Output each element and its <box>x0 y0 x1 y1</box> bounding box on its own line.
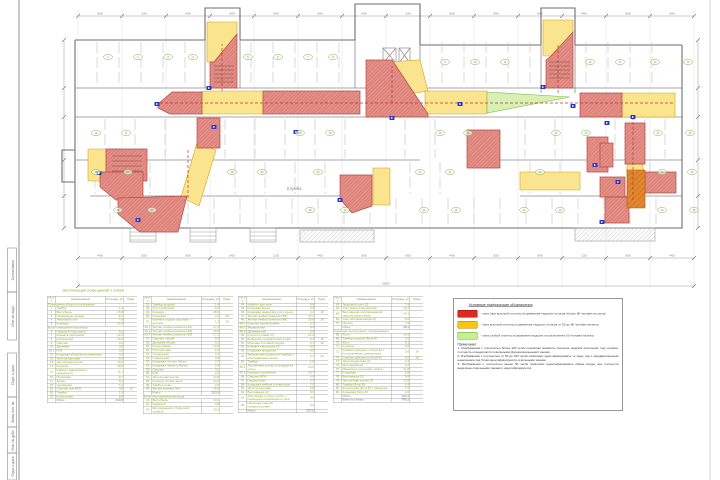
table-row: 55.1Лестничная клетка со входом на улицу… <box>238 364 328 371</box>
evacuation-direction-marker <box>631 115 636 119</box>
room-number-tag: 40 <box>420 207 429 212</box>
table-row: 26Комната отдыха (игровая) — детская1,21… <box>143 318 233 325</box>
room-number-tag: 28 <box>228 169 237 174</box>
room-number-tag: 15 <box>684 59 693 64</box>
frame-stamp-label: Взам. инв. № <box>11 401 15 422</box>
schedule-header: Прим. <box>124 296 137 303</box>
schedule-header: Площадь, м² <box>391 296 410 303</box>
evacuation-direction-marker <box>155 102 160 106</box>
room-number-tag: 42 <box>520 207 529 212</box>
svg-text:5400: 5400 <box>229 254 235 258</box>
room-number-tag: 18 <box>296 130 305 135</box>
evacuation-direction-marker <box>616 180 621 184</box>
svg-text:5400: 5400 <box>273 12 279 16</box>
svg-text:1200: 1200 <box>273 254 279 258</box>
room-schedule-table-4: № п/пНаименованиеПлощадь, м²Прим.63Лифто… <box>333 296 423 480</box>
room-number-tag: 34 <box>658 169 667 174</box>
legend-notes: 1. Изображения с плотностью более 100 че… <box>458 347 619 371</box>
room-number-tag: 7 <box>304 54 313 59</box>
schedule-header: Площадь, м² <box>296 296 315 303</box>
table-row: Итого207,6 <box>238 409 328 413</box>
svg-text:3000: 3000 <box>493 254 499 258</box>
flowerbed-label: Клумба <box>287 186 302 191</box>
room-number-tag: 1 <box>104 54 113 59</box>
room-number-tag: 20 <box>436 130 445 135</box>
schedule-header: № п/п <box>143 296 152 303</box>
svg-text:3000: 3000 <box>229 12 235 16</box>
schedule-header: Прим. <box>410 296 423 303</box>
svg-text:4400: 4400 <box>317 254 323 258</box>
svg-text:5400: 5400 <box>537 254 543 258</box>
room-number-tag: 21 <box>464 130 473 135</box>
room-number-tag: 6 <box>274 54 283 59</box>
svg-text:4400: 4400 <box>97 254 103 258</box>
svg-text:3000: 3000 <box>361 254 367 258</box>
legend-color-swatch <box>458 310 478 318</box>
room-number-tag: 10 <box>471 59 480 64</box>
entrance-porches <box>130 228 655 242</box>
evacuation-direction-marker <box>136 218 141 222</box>
room-number-tag: 14 <box>651 59 660 64</box>
room-number-tag: 26 <box>92 169 101 174</box>
room-number-tag: 33 <box>536 169 545 174</box>
room-number-tag: 35 <box>688 169 697 174</box>
room-number-tag: 16 <box>92 130 101 135</box>
schedule-header: Наименование <box>152 296 202 303</box>
svg-text:3000: 3000 <box>537 12 543 16</box>
drawing-sheet: СогласованоИнв. № подл.Подп. и датаВзам.… <box>0 0 720 480</box>
table-row: Всего по этажу785,2 <box>333 398 423 402</box>
room-number-tag: 37 <box>148 207 157 212</box>
evacuation-direction-marker <box>571 104 576 108</box>
svg-text:3600: 3600 <box>97 12 103 16</box>
room-number-tag: 19 <box>326 130 335 135</box>
schedule-header: № п/п <box>47 296 56 303</box>
schedule-header: Наименование <box>56 296 106 303</box>
room-number-tag: 3 <box>164 54 173 59</box>
room-number-tag: 4 <box>189 54 198 59</box>
table-row: 62Насосная станция пожаротушения9,2 <box>238 402 328 409</box>
evacuation-direction-marker <box>338 198 343 202</box>
evacuation-direction-marker <box>390 116 395 120</box>
svg-text:1200: 1200 <box>581 254 587 258</box>
legend-title: Условные графические обозначения <box>469 303 619 308</box>
frame-stamp-label: Согласовано <box>11 260 15 281</box>
legend-color-swatch <box>458 332 478 340</box>
room-schedule-table-3: № п/пНаименованиеПлощадь, м²Прим.44Кабин… <box>238 296 328 480</box>
svg-text:4400: 4400 <box>669 254 675 258</box>
svg-text:3600: 3600 <box>625 254 631 258</box>
room-schedule-table-1: № п/пНаименованиеПлощадь, м²Прим.Помещен… <box>47 296 137 480</box>
svg-text:1200: 1200 <box>405 12 411 16</box>
legend-item: - зона (при высокой плотности) движения … <box>458 310 619 318</box>
evacuation-direction-marker <box>541 85 546 89</box>
room-number-tag: 11 <box>501 59 510 64</box>
svg-text:3600: 3600 <box>405 254 411 258</box>
room-number-tag: 2 <box>134 54 143 59</box>
svg-text:4400: 4400 <box>449 254 455 258</box>
legend-notes-title: Примечания: <box>458 343 619 347</box>
legend-box: Условные графические обозначения - зона … <box>453 298 623 411</box>
svg-text:4400: 4400 <box>361 12 367 16</box>
room-number-tag: 45 <box>690 207 699 212</box>
room-number-tag: 12 <box>586 59 595 64</box>
svg-text:3600: 3600 <box>625 12 631 16</box>
svg-text:3000: 3000 <box>317 12 323 16</box>
room-number-tag: 9 <box>441 59 450 64</box>
room-number-tag: 36 <box>114 207 123 212</box>
svg-text:5400: 5400 <box>493 12 499 16</box>
frame-stamp-label: Инв. № дубл. <box>11 429 15 450</box>
svg-text:3000: 3000 <box>141 254 147 258</box>
table-row: 61Узел ввода и учёта тепла — помещение в… <box>238 395 328 402</box>
frame-stamp-label: Подп. и дата <box>11 456 15 476</box>
evacuation-direction-marker <box>600 220 605 224</box>
legend-note: 2. Изображения с плотностью от 50 до 100… <box>458 355 619 363</box>
room-number-tag: 5 <box>244 54 253 59</box>
svg-text:3600: 3600 <box>185 254 191 258</box>
legend-item-text: - зона высокой плотности движения людски… <box>481 323 599 327</box>
schedule-header: Прим. <box>220 296 233 303</box>
legend-note: 3. Изображения с плотностью менее 50 чел… <box>458 363 619 371</box>
green-zones-group <box>487 92 570 113</box>
legend-note: 1. Изображения с плотностью более 100 че… <box>458 347 619 355</box>
legend-item-text: - зона (при высокой плотности) движения … <box>481 312 606 316</box>
schedule-header: № п/п <box>238 296 247 303</box>
svg-text:4400: 4400 <box>185 12 191 16</box>
room-number-tag: 31 <box>416 169 425 174</box>
room-number-tag: 22 <box>552 130 561 135</box>
table-row: 15Кабинет заведующего (дежурного)11,3 <box>47 369 137 376</box>
frame-stamp-label: Подп. и дата <box>11 365 15 385</box>
legend-item: - зона высокой плотности движения людски… <box>458 321 619 329</box>
room-number-tag: 39 <box>341 207 350 212</box>
frame-stamp-column: СогласованоИнв. № подл.Подп. и датаВзам.… <box>8 248 17 480</box>
legend-items: - зона (при высокой плотности) движения … <box>458 310 619 340</box>
schedule-header: № п/п <box>333 296 342 303</box>
evacuation-direction-marker <box>593 163 598 167</box>
room-number-tag: 23 <box>582 130 591 135</box>
evacuation-direction-marker <box>212 125 217 129</box>
schedule-header: Прим. <box>315 296 328 303</box>
room-number-tag: 29 <box>258 169 267 174</box>
table-row: 54Загрузочная продуктов (тамбур) с обогр… <box>238 353 328 360</box>
svg-text:4400: 4400 <box>581 12 587 16</box>
table-row: Итого219,8 <box>47 399 137 403</box>
svg-text:63800: 63800 <box>382 282 390 286</box>
room-number-tag: 44 <box>658 207 667 212</box>
evacuation-direction-marker <box>605 121 610 125</box>
room-number-tag: 41 <box>452 207 461 212</box>
room-number-tag: 30 <box>314 169 323 174</box>
legend-color-swatch <box>458 321 478 329</box>
svg-text:3000: 3000 <box>669 12 675 16</box>
stair-flights <box>112 62 570 171</box>
room-number-tag: 43 <box>556 207 565 212</box>
room-number-tag: 25 <box>686 130 695 135</box>
table-row: 43Зал ожидания с буфетной стойкой15,4 <box>143 407 233 414</box>
svg-text:3600: 3600 <box>449 12 455 16</box>
schedule-header: Наименование <box>342 296 392 303</box>
table-row: 65Венткамера противодымной защиты (прито… <box>333 311 423 318</box>
room-number-tag: 17 <box>122 130 131 135</box>
evacuation-direction-marker <box>207 86 212 90</box>
legend-item-text: - зона слабой плотности движения людских… <box>481 334 595 338</box>
schedule-header: Площадь, м² <box>105 296 124 303</box>
room-number-tag: 13 <box>616 59 625 64</box>
room-number-tag: 38 <box>306 207 315 212</box>
room-number-tag: 27 <box>124 169 133 174</box>
table-row: 72Комната дежурного (блок Б) с естествен… <box>333 349 423 356</box>
legend-item: - зона слабой плотности движения людских… <box>458 332 619 340</box>
schedule-header: Наименование <box>247 296 297 303</box>
svg-text:1200: 1200 <box>141 12 147 16</box>
room-number-tag: 8 <box>329 54 338 59</box>
orange-zone <box>627 170 645 208</box>
room-number-tag: 24 <box>654 130 663 135</box>
frame-stamp-label: Инв. № подл. <box>11 305 15 326</box>
schedule-header: Площадь, м² <box>201 296 220 303</box>
evacuation-direction-marker <box>458 102 463 106</box>
room-schedule-table-2: № п/пНаименованиеПлощадь, м²Прим.22Тамбу… <box>143 296 233 480</box>
room-number-tag: 32 <box>446 169 455 174</box>
